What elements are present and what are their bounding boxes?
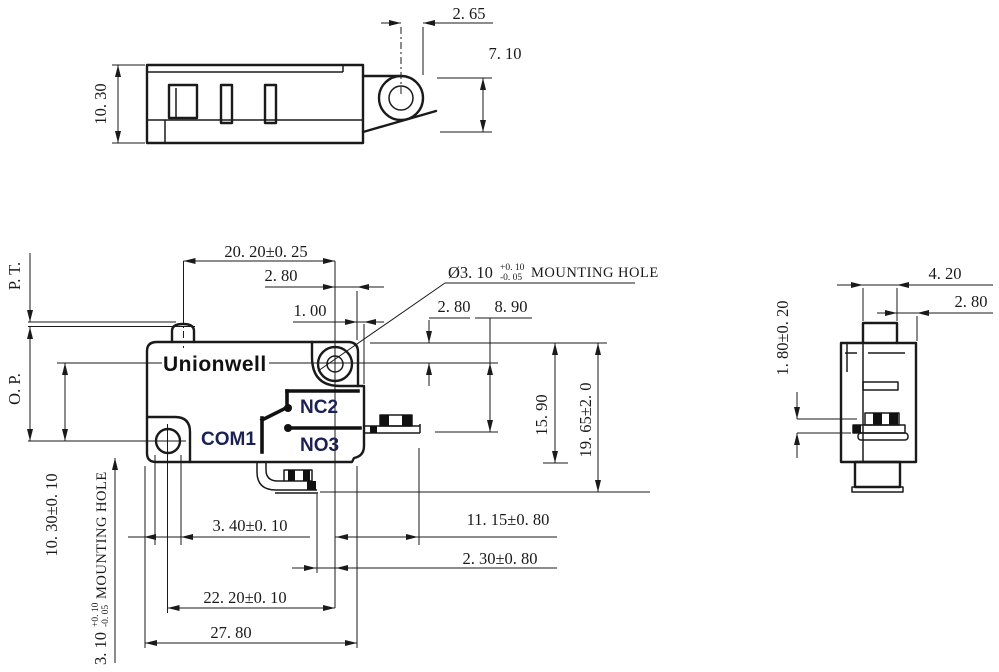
dim-side-terminal-height-label: 1. 80±0. 20 bbox=[773, 300, 792, 375]
dim-hole-to-terminal-label: 8. 90 bbox=[495, 297, 528, 316]
dim-hole-spacing-v-label: 10. 30±0. 10 bbox=[42, 473, 61, 556]
dim-terminal-length-label: 11. 15±0. 80 bbox=[467, 510, 550, 529]
svg-text:-0. 05: -0. 05 bbox=[101, 605, 111, 627]
bottom-left-lug bbox=[147, 417, 190, 462]
svg-text:+0. 10: +0. 10 bbox=[500, 263, 525, 273]
dim-top-height-label: 10. 30 bbox=[91, 83, 110, 124]
dim-top-to-hole-label: 2. 80 bbox=[438, 297, 471, 316]
pre-travel-label: P. T. bbox=[5, 262, 24, 290]
side-bottom-boss bbox=[855, 462, 900, 487]
side-terminal-block bbox=[853, 413, 908, 440]
top-view: 10. 30 2. 65 7. 10 bbox=[91, 4, 522, 143]
side-bottom-flange bbox=[852, 487, 903, 492]
side-view: 4. 20 2. 80 1. 80±0. 20 bbox=[773, 264, 993, 492]
dim-side-plunger-width-label: 4. 20 bbox=[929, 264, 962, 283]
side-plunger bbox=[863, 323, 897, 343]
micro-switch-technical-drawing: 10. 30 2. 65 7. 10 bbox=[0, 0, 999, 672]
drawing-canvas: 10. 30 2. 65 7. 10 bbox=[0, 0, 999, 672]
dim-lug-height-label: 7. 10 bbox=[489, 44, 522, 63]
hole-dia-value: 3. 10 bbox=[91, 632, 110, 665]
top-view-slot-2 bbox=[265, 85, 276, 123]
svg-text:-0. 05: -0. 05 bbox=[500, 273, 522, 283]
dim-edge-step-label: 1. 00 bbox=[294, 301, 327, 320]
dim-hole-to-edge-label: 2. 80 bbox=[265, 266, 298, 285]
dim-body-height-label: 15. 90 bbox=[532, 394, 551, 435]
callout-dia-label: Ø3. 10 bbox=[448, 263, 493, 282]
dim-overall-height-label: 19. 65±2. 0 bbox=[576, 382, 595, 457]
no-terminal bbox=[364, 415, 420, 433]
svg-text:+0. 10: +0. 10 bbox=[91, 602, 101, 627]
dim-hole-spacing-h-label: 22. 20±0. 10 bbox=[203, 588, 286, 607]
callout-text-label: MOUNTING HOLE bbox=[531, 265, 659, 281]
hole-dia-text: MOUNTING HOLE bbox=[94, 471, 110, 599]
terminal-label-nc: NC2 bbox=[300, 397, 338, 418]
operating-position-label: O. P. bbox=[5, 373, 24, 405]
top-view-slot-1 bbox=[221, 85, 232, 123]
side-body bbox=[841, 343, 916, 462]
top-view-body bbox=[147, 65, 363, 143]
dim-side-plunger-offset-label: 2. 80 bbox=[955, 292, 988, 311]
dim-com-to-hole-label: 3. 40±0. 10 bbox=[212, 516, 287, 535]
callout-leader bbox=[318, 283, 445, 371]
lever-arm bbox=[262, 409, 284, 420]
dim-hole-offset-label: 2. 65 bbox=[453, 4, 486, 23]
terminal-label-no: NO3 bbox=[300, 435, 339, 456]
dim-overall-width-label: 27. 80 bbox=[210, 623, 251, 642]
brand-label: Unionwell bbox=[163, 353, 267, 376]
dim-plunger-to-hole-label: 20. 20±0. 25 bbox=[224, 242, 307, 261]
dim-terminal-offset-label: 2. 30±0. 80 bbox=[462, 549, 537, 568]
com-terminal bbox=[257, 462, 318, 493]
top-view-plunger-slot bbox=[169, 85, 197, 118]
side-slot bbox=[863, 382, 898, 390]
front-view: Unionwell NC2 COM1 NO3 P. T. O. P. 10. 3… bbox=[5, 242, 659, 665]
terminal-label-com: COM1 bbox=[201, 429, 256, 450]
hole-dia-callout: 3. 10 +0. 10 -0. 05 MOUNTING HOLE bbox=[91, 471, 111, 665]
